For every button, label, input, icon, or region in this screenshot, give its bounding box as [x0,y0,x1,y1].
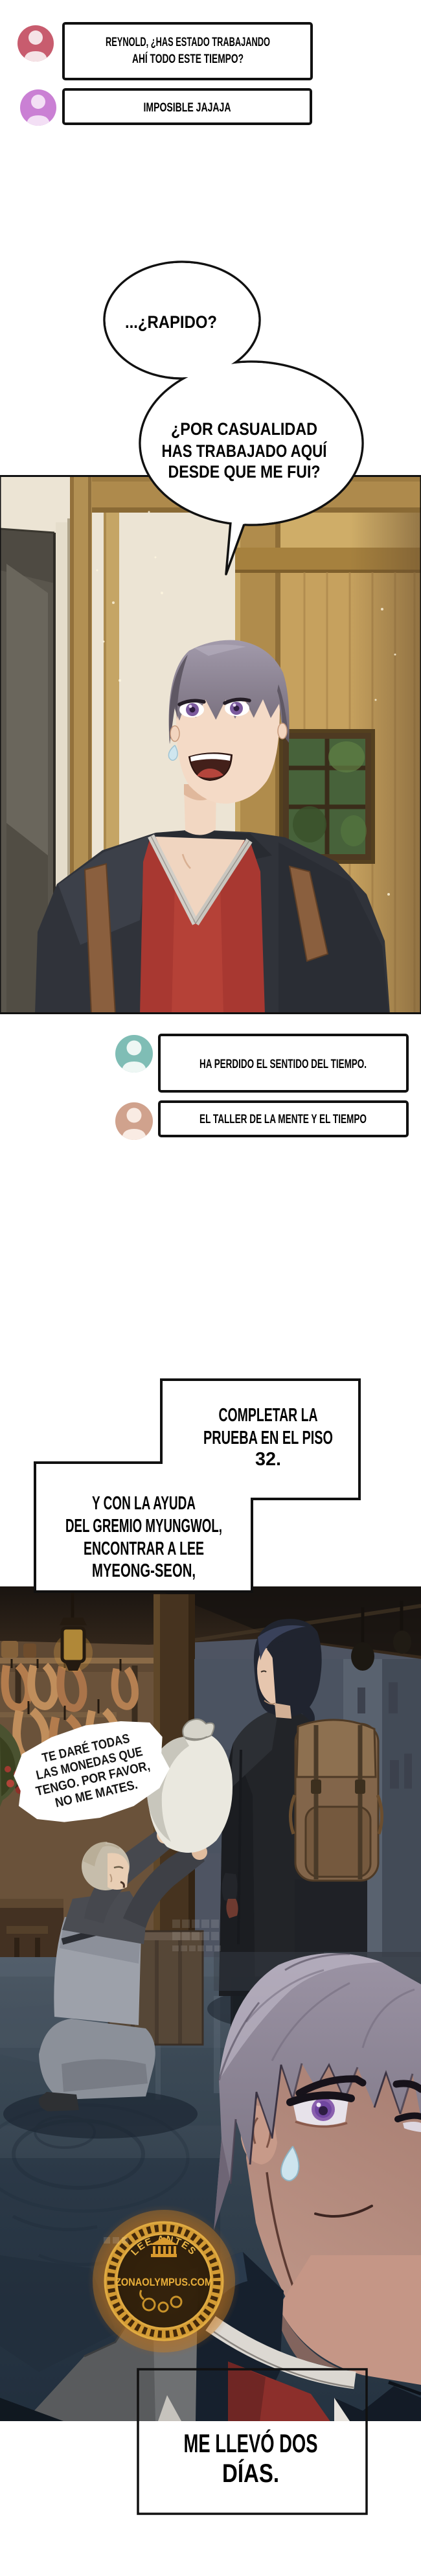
svg-text:REYNOLD, ¿HAS ESTADO TRABAJAND: REYNOLD, ¿HAS ESTADO TRABAJANDO [106,36,270,49]
svg-text:HA PERDIDO EL SENTIDO DEL TIEM: HA PERDIDO EL SENTIDO DEL TIEMPO. [199,1058,367,1071]
svg-text:IMPOSIBLE JAJAJA: IMPOSIBLE JAJAJA [144,101,231,115]
svg-text:...¿RAPIDO?: ...¿RAPIDO? [125,312,217,332]
svg-text:EL TALLER DE LA MENTE Y EL TIE: EL TALLER DE LA MENTE Y EL TIEMPO [199,1113,367,1126]
svg-text:PRUEBA EN EL PISO: PRUEBA EN EL PISO [203,1428,333,1448]
svg-text:32.: 32. [255,1449,281,1470]
svg-text:DESDE QUE ME FUI?: DESDE QUE ME FUI? [168,462,321,482]
svg-text:ME LLEVÓ DOS: ME LLEVÓ DOS [184,2428,318,2458]
svg-text:AHÍ TODO ESTE TIEMPO?: AHÍ TODO ESTE TIEMPO? [132,52,244,66]
svg-text:MYEONG-SEON,: MYEONG-SEON, [92,1561,196,1581]
svg-text:¿POR CASUALIDAD: ¿POR CASUALIDAD [171,419,317,439]
svg-text:HAS TRABAJADO AQUÍ: HAS TRABAJADO AQUÍ [162,441,328,461]
svg-text:COMPLETAR LA: COMPLETAR LA [219,1405,318,1426]
svg-text:DEL GREMIO MYUNGWOL,: DEL GREMIO MYUNGWOL, [65,1516,222,1537]
svg-text:Y CON LA AYUDA: Y CON LA AYUDA [92,1493,196,1514]
svg-text:DÍAS.: DÍAS. [222,2459,279,2488]
svg-text:ENCONTRAR A LEE: ENCONTRAR A LEE [84,1538,204,1559]
svg-text:ZONAOLYMPUS.COM: ZONAOLYMPUS.COM [115,2276,212,2288]
